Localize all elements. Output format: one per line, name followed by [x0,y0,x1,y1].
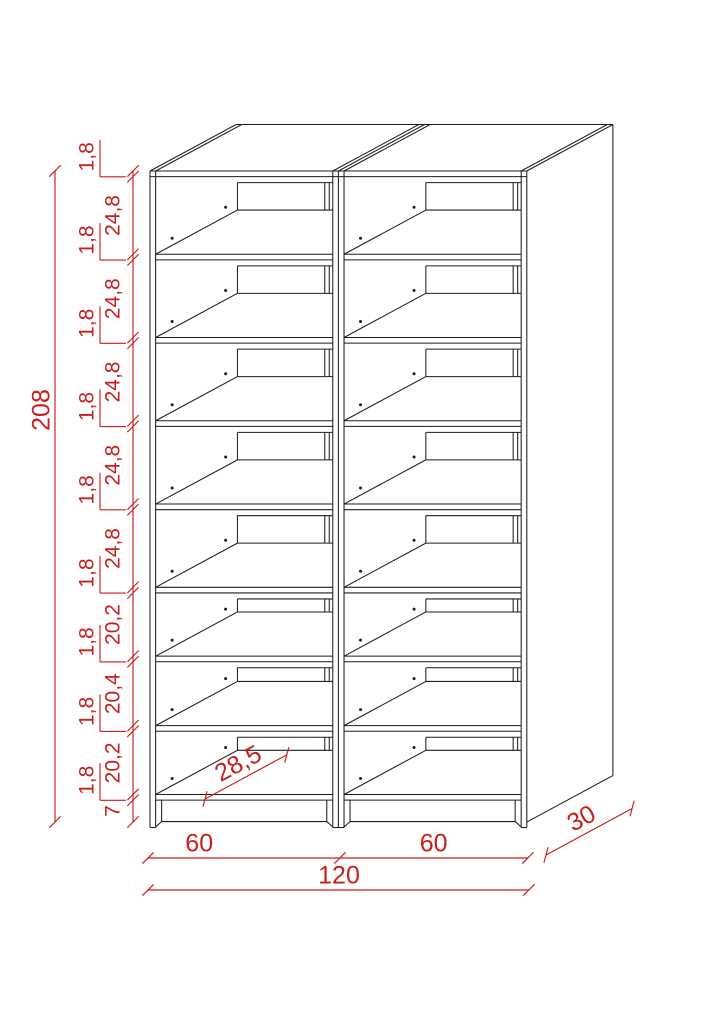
height-chain-label: 24,8 [102,278,125,319]
height-chain-label: 1,8 [76,559,99,588]
height-chain-label: 24,8 [102,195,125,236]
technical-drawing-svg: 2081,824,81,824,81,824,81,824,81,824,81,… [0,0,724,1024]
height-chain-label: 20,2 [102,604,125,645]
overall-width-label: 120 [318,862,360,890]
height-chain-label: 1,8 [76,627,99,656]
height-chain-label: 1,8 [76,142,99,171]
height-chain-label: 20,2 [102,742,125,783]
height-chain-label: 1,8 [76,392,99,421]
height-chain-label: 1,8 [76,766,99,795]
depth-label: 30 [562,800,600,838]
height-chain-label: 24,8 [102,445,125,486]
drawing-canvas: 2081,824,81,824,81,824,81,824,81,824,81,… [0,0,724,1024]
overall-height-label: 208 [28,389,56,431]
height-chain-label: 20,4 [102,673,125,714]
height-chain-label: 1,8 [76,697,99,726]
cabinet-line-art [150,125,613,828]
dimension-annotations: 2081,824,81,824,81,824,81,824,81,824,81,… [28,140,635,896]
height-chain-label: 24,8 [102,362,125,403]
height-chain-label: 1,8 [76,475,99,504]
height-chain-label: 1,8 [76,309,99,338]
height-chain-label: 1,8 [76,225,99,254]
column-width-label: 60 [420,830,448,858]
column-width-label: 60 [185,830,213,858]
height-chain-label: 7 [102,805,125,817]
height-chain-label: 24,8 [102,528,125,569]
